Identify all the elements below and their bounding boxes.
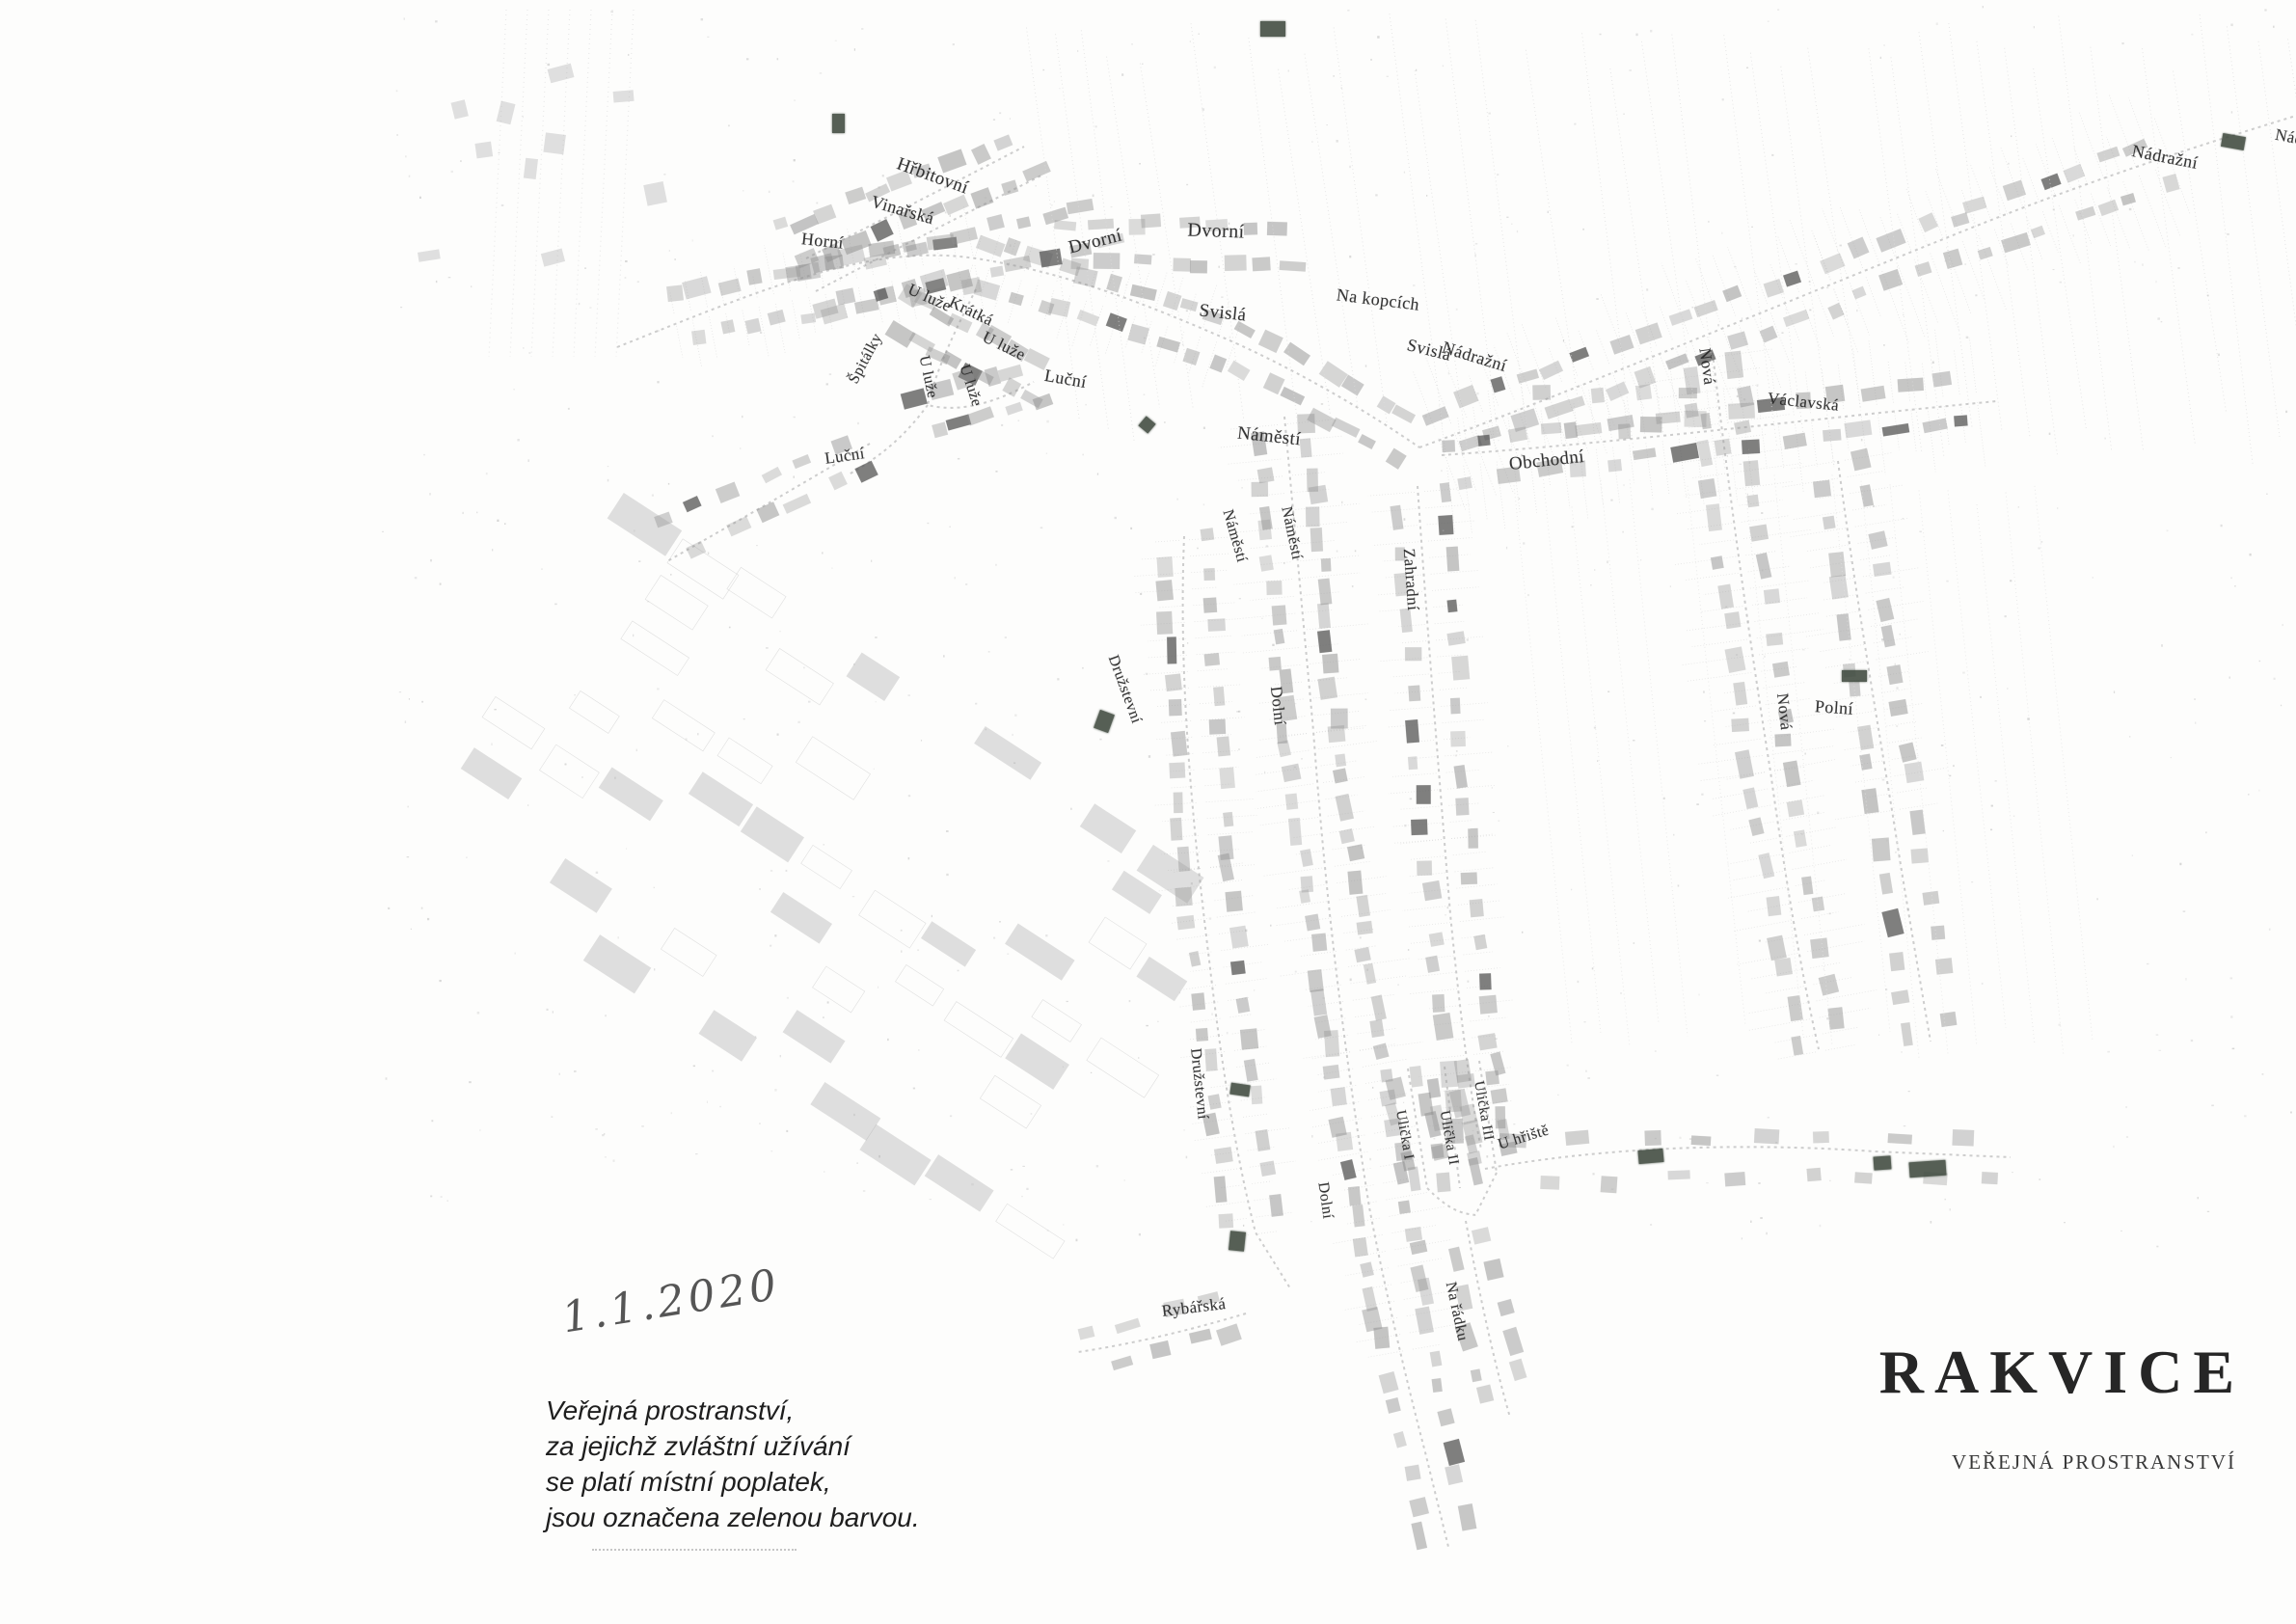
street-label: Dvorní xyxy=(1187,219,1245,243)
title-block: RAKVICE VEŘEJNÁ PROSTRANSTVÍ xyxy=(1879,1337,2234,1475)
public-space-mark xyxy=(1637,1149,1663,1164)
legend-note-line: Veřejná prostranství, xyxy=(546,1393,920,1428)
legend-note-line: se platí místní poplatek, xyxy=(546,1464,920,1500)
scanned-map-page: HřbitovníVinařskáHorníU lužeKrátkáU luže… xyxy=(0,0,2296,1624)
public-space-mark xyxy=(1260,21,1285,37)
legend-note-line: jsou označena zelenou barvou. xyxy=(546,1500,920,1535)
map-subtitle: VEŘEJNÁ PROSTRANSTVÍ xyxy=(1879,1450,2236,1475)
public-space-mark xyxy=(832,114,845,133)
public-space-mark xyxy=(1229,1231,1246,1252)
public-space-mark xyxy=(1908,1160,1946,1178)
street-label: Horní xyxy=(800,229,845,253)
street-label: Polní xyxy=(1814,696,1853,719)
public-space-mark xyxy=(1874,1155,1892,1170)
map-title: RAKVICE xyxy=(1879,1337,2245,1408)
public-space-mark xyxy=(1229,1083,1250,1097)
public-space-mark xyxy=(1842,670,1867,682)
street-label: Nová xyxy=(1772,692,1796,731)
street-label: Dolní xyxy=(1266,686,1289,727)
legend-note-line: za jejichž zvláštní užívání xyxy=(546,1428,920,1464)
faint-dotted-line xyxy=(592,1549,797,1551)
legend-note: Veřejná prostranství, za jejichž zvláštn… xyxy=(546,1393,920,1535)
